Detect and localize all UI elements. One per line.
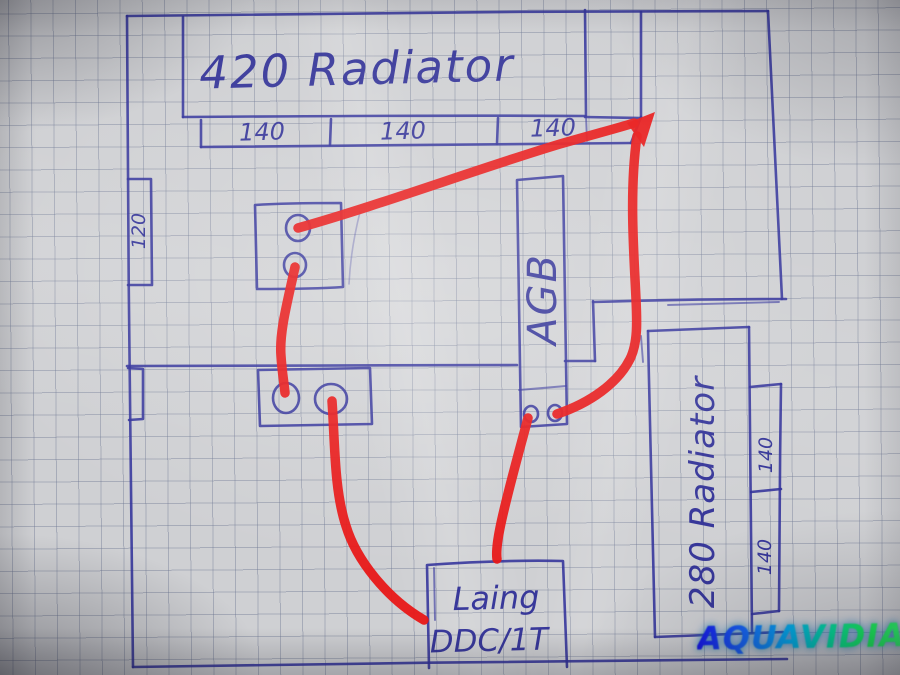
- photo-of-watercooling-sketch: 420 Radiator 140 140 140 120 AGB 280 Rad…: [0, 0, 900, 675]
- flow-arrowhead: [627, 112, 655, 147]
- label-pump-name: Laing: [452, 578, 540, 618]
- label-dimension-120: 120: [128, 213, 150, 249]
- tube-agb-to-pump: [497, 418, 528, 559]
- tube-block-to-block: [281, 267, 295, 393]
- label-radiator-280: 280 Radiator: [683, 376, 723, 608]
- label-420-segment-3: 140: [530, 113, 577, 142]
- watermark-aquavidia: AQUAVIDIA: [697, 616, 900, 658]
- label-reservoir-agb: AGB: [520, 253, 566, 345]
- label-pump-model: DDC/1T: [429, 621, 548, 660]
- tubing-lines: [281, 112, 655, 620]
- tube-block-to-radiator: [298, 123, 634, 228]
- tube-agb-to-radiator: [557, 136, 637, 414]
- label-280-segment-1: 140: [755, 437, 777, 473]
- label-280-segment-2: 140: [754, 539, 776, 575]
- label-420-segment-1: 140: [239, 117, 286, 146]
- label-radiator-420: 420 Radiator: [199, 38, 516, 99]
- label-420-segment-2: 140: [380, 116, 427, 145]
- tube-block-to-pump: [332, 401, 424, 620]
